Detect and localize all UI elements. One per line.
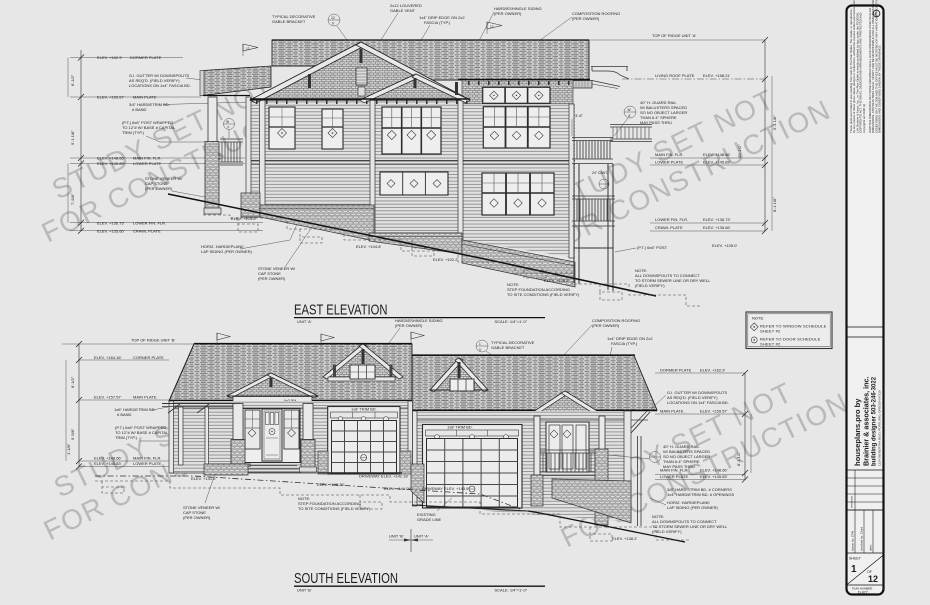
svg-text:drawn by: CPB: drawn by: CPB bbox=[851, 531, 855, 551]
svg-text:(PER OWNER): (PER OWNER) bbox=[258, 276, 286, 281]
svg-text:CRAWL PLATE: CRAWL PLATE bbox=[133, 228, 161, 233]
svg-text:W: W bbox=[226, 120, 229, 124]
svg-text:LOWER PLATE: LOWER PLATE bbox=[133, 461, 161, 466]
svg-text:GABLE BRACKET: GABLE BRACKET bbox=[491, 345, 525, 350]
svg-text:ELEV. +144.08': ELEV. +144.08' bbox=[384, 486, 412, 491]
svg-text:39'-1/2": 39'-1/2" bbox=[737, 144, 742, 158]
svg-text:ELEV. +164.18': ELEV. +164.18' bbox=[94, 355, 122, 360]
svg-text:SOUTH ELEVATION: SOUTH ELEVATION bbox=[294, 570, 398, 587]
svg-text:MAIN PLATE: MAIN PLATE bbox=[133, 395, 157, 400]
svg-text:9: 9 bbox=[479, 348, 481, 352]
svg-text:revisions: revisions bbox=[850, 496, 854, 508]
svg-text:9: 9 bbox=[332, 22, 334, 26]
svg-text:ELEV. +145.83': ELEV. +145.83' bbox=[700, 474, 728, 479]
svg-text:9'-1 1/8": 9'-1 1/8" bbox=[70, 130, 75, 145]
svg-text:12: 12 bbox=[246, 47, 250, 51]
svg-text:1x4" HARDIETRIM BD. # OPENINGS: 1x4" HARDIETRIM BD. # OPENINGS bbox=[667, 492, 735, 497]
svg-text:UNIT 'A': UNIT 'A' bbox=[297, 319, 312, 324]
svg-text:(PER OWNER): (PER OWNER) bbox=[183, 515, 211, 520]
svg-text:# BAND: # BAND bbox=[117, 412, 132, 417]
svg-text:ELEV. +136.73': ELEV. +136.73' bbox=[703, 217, 731, 222]
svg-text:ELEV. +148.66': ELEV. +148.66' bbox=[97, 156, 125, 161]
svg-text:ELEV. +162.9': ELEV. +162.9' bbox=[700, 368, 725, 373]
svg-text:(PER OWNER): (PER OWNER) bbox=[145, 186, 173, 191]
svg-text:9'-1 1/8": 9'-1 1/8" bbox=[772, 115, 777, 130]
svg-text:DIMENSIONS AND CONDITIONS SHOW: DIMENSIONS AND CONDITIONS SHOWN BY THESE… bbox=[878, 45, 882, 133]
svg-text:LAP SIDING (PER OWNER): LAP SIDING (PER OWNER) bbox=[201, 249, 252, 254]
svg-text:ELEV. +148.66': ELEV. +148.66' bbox=[700, 468, 728, 473]
svg-text:ELEV. +162.9': ELEV. +162.9' bbox=[97, 55, 122, 60]
svg-text:MAIN FIN. FLR.: MAIN FIN. FLR. bbox=[655, 152, 683, 157]
svg-text:(PER OWNER): (PER OWNER) bbox=[494, 11, 522, 16]
svg-text:W: W bbox=[628, 108, 631, 112]
svg-text:SCALE: 1/4"=1'-0": SCALE: 1/4"=1'-0" bbox=[495, 319, 528, 324]
svg-text:LOCATIONS ON 1x4" FASCIA BD.: LOCATIONS ON 1x4" FASCIA BD. bbox=[667, 400, 729, 405]
svg-text:12: 12 bbox=[331, 16, 335, 20]
svg-text:GABLE VENT: GABLE VENT bbox=[390, 8, 416, 13]
svg-text:9'-5/8": 9'-5/8" bbox=[70, 428, 75, 440]
svg-text:CORNER PLATE: CORNER PLATE bbox=[133, 355, 164, 360]
svg-text:TRIM (TYP.): TRIM (TYP.) bbox=[122, 130, 145, 135]
svg-text:F: F bbox=[228, 126, 230, 130]
svg-text:ELEV. +136.73': ELEV. +136.73' bbox=[97, 220, 125, 225]
svg-text:ELEV. +102.2': ELEV. +102.2' bbox=[433, 257, 458, 262]
svg-text:ELEV. +145.83': ELEV. +145.83' bbox=[94, 461, 122, 466]
svg-text:# BAND: # BAND bbox=[132, 107, 147, 112]
svg-text:ELEV. +138.2': ELEV. +138.2' bbox=[612, 536, 637, 541]
svg-text:1x8' TRIM BD.: 1x8' TRIM BD. bbox=[447, 425, 473, 430]
svg-text:ELEV. +158.21': ELEV. +158.21' bbox=[703, 73, 731, 78]
svg-text:FASCIA (TYP.): FASCIA (TYP.) bbox=[424, 20, 451, 25]
svg-text:UNIT 'B': UNIT 'B' bbox=[389, 534, 404, 539]
svg-text:FASCIA (TYP.): FASCIA (TYP.) bbox=[611, 341, 638, 346]
svg-text:TO SITE CONDITIONS (FIELD VERI: TO SITE CONDITIONS (FIELD VERIFY) bbox=[507, 292, 580, 297]
svg-text:DORMER PLATE: DORMER PLATE bbox=[130, 55, 162, 60]
svg-text:MAIN FIN. FLR.: MAIN FIN. FLR. bbox=[133, 156, 161, 161]
svg-text:ELEV. +157.57': ELEV. +157.57' bbox=[94, 395, 122, 400]
svg-text:TO SITE CONDITIONS (FIELD VERI: TO SITE CONDITIONS (FIELD VERIFY) bbox=[298, 506, 371, 511]
svg-text:7'-5/8": 7'-5/8" bbox=[70, 193, 75, 205]
svg-text:SHEET #2: SHEET #2 bbox=[760, 329, 781, 334]
svg-text:8'-1 1/8": 8'-1 1/8" bbox=[772, 197, 777, 212]
svg-text:1: 1 bbox=[851, 564, 857, 575]
svg-text:MAIN PLATE: MAIN PLATE bbox=[133, 95, 157, 100]
svg-text:LOWER PLATE: LOWER PLATE bbox=[133, 161, 161, 166]
svg-text:ELEV. +103.8': ELEV. +103.8' bbox=[231, 216, 256, 221]
svg-text:GABLE BRACKET: GABLE BRACKET bbox=[272, 19, 306, 24]
svg-text:UNIT 'B': UNIT 'B' bbox=[297, 588, 312, 593]
svg-text:ELEV. +148.66': ELEV. +148.66' bbox=[703, 152, 731, 157]
svg-text:copyrights act 1990 (c): copyrights act 1990 (c) bbox=[862, 104, 866, 133]
svg-text:(P.T.) 6x6" POST: (P.T.) 6x6" POST bbox=[637, 245, 668, 250]
svg-text:ELEV. +105.8': ELEV. +105.8' bbox=[544, 278, 569, 283]
svg-text:LAP SIDING (PER OWNER): LAP SIDING (PER OWNER) bbox=[667, 505, 718, 510]
svg-text:1: 1 bbox=[479, 342, 481, 346]
svg-text:(PER OWNER): (PER OWNER) bbox=[395, 323, 423, 328]
svg-text:LOWER FIN. FLR.: LOWER FIN. FLR. bbox=[655, 217, 688, 222]
svg-text:24" CANT.: 24" CANT. bbox=[592, 171, 608, 175]
svg-text:date:: date: bbox=[869, 544, 873, 551]
svg-text:c: c bbox=[875, 12, 878, 18]
svg-text:8: 8 bbox=[629, 114, 631, 118]
svg-text:LOCATIONS ON 1x4" FASCIA BD.: LOCATIONS ON 1x4" FASCIA BD. bbox=[129, 83, 191, 88]
svg-text:SHEET #2: SHEET #2 bbox=[760, 342, 781, 347]
svg-text:SCALE: 1/4"=1'-0": SCALE: 1/4"=1'-0" bbox=[495, 588, 528, 593]
svg-text:ELEV. +145.83': ELEV. +145.83' bbox=[97, 161, 125, 166]
svg-text:MAY PASS THRU: MAY PASS THRU bbox=[640, 120, 672, 125]
svg-text:1'-1/8": 1'-1/8" bbox=[66, 443, 71, 455]
svg-text:12: 12 bbox=[868, 574, 878, 584]
svg-text:ELEV. +135.66': ELEV. +135.66' bbox=[97, 228, 125, 233]
svg-text:12: 12 bbox=[490, 25, 494, 29]
svg-text:ELEV. +159.57': ELEV. +159.57' bbox=[700, 409, 728, 414]
svg-text:MAY PASS THRU: MAY PASS THRU bbox=[663, 464, 695, 469]
svg-text:1234 SW BERTHA BLVD, PORTLAND: 1234 SW BERTHA BLVD, PORTLAND, OREGON 97… bbox=[877, 390, 881, 466]
svg-text:(FIELD VERIFY): (FIELD VERIFY) bbox=[652, 529, 682, 534]
svg-text:CRAWL PLATE: CRAWL PLATE bbox=[655, 225, 683, 230]
svg-text:D-977: D-977 bbox=[858, 591, 868, 595]
svg-text:checked by: Chad: checked by: Chad bbox=[860, 527, 864, 551]
svg-text:TOP OF RIDGE UNIT 'A': TOP OF RIDGE UNIT 'A' bbox=[652, 33, 696, 38]
svg-text:MAIN PLATE: MAIN PLATE bbox=[660, 409, 684, 414]
svg-text:(FIELD VERIFY): (FIELD VERIFY) bbox=[635, 283, 665, 288]
svg-text:SHEET: SHEET bbox=[849, 557, 862, 561]
svg-text:LIVING ROOF PLATE: LIVING ROOF PLATE bbox=[655, 73, 695, 78]
svg-text:(PER OWNER): (PER OWNER) bbox=[572, 16, 600, 21]
svg-text:ELEV. +104.8': ELEV. +104.8' bbox=[356, 244, 381, 249]
svg-text:DRIVEWAY ELEV. +143.9': DRIVEWAY ELEV. +143.9' bbox=[422, 486, 469, 491]
svg-text:8'-1/2": 8'-1/2" bbox=[70, 74, 75, 86]
svg-text:LOWER FIN. FLR.: LOWER FIN. FLR. bbox=[133, 220, 166, 225]
svg-text:8'-1 1/2": 8'-1 1/2" bbox=[736, 451, 741, 466]
svg-text:ELEV. +145.25': ELEV. +145.25' bbox=[317, 482, 345, 487]
svg-text:MAIN FIN. FLR.: MAIN FIN. FLR. bbox=[133, 456, 161, 461]
svg-text:UNIT 'A': UNIT 'A' bbox=[414, 534, 429, 539]
svg-text:3'-6": 3'-6" bbox=[575, 113, 584, 118]
svg-text:1x8' TRIM BD.: 1x8' TRIM BD. bbox=[351, 407, 377, 412]
svg-text:Brainier & associates, inc.: Brainier & associates, inc. bbox=[862, 377, 871, 467]
svg-text:TOP OF RIDGE UNIT 'B': TOP OF RIDGE UNIT 'B' bbox=[131, 338, 175, 343]
svg-text:8'-1/2": 8'-1/2" bbox=[70, 376, 75, 388]
svg-text:ELEV. +145.83': ELEV. +145.83' bbox=[703, 160, 731, 165]
svg-text:(PER OWNER): (PER OWNER) bbox=[592, 323, 620, 328]
svg-text:ELEV. +105.0': ELEV. +105.0' bbox=[712, 243, 737, 248]
svg-text:EAST ELEVATION: EAST ELEVATION bbox=[294, 302, 388, 319]
svg-text:ELEV. +148.66': ELEV. +148.66' bbox=[94, 456, 122, 461]
svg-text:3'-6": 3'-6" bbox=[217, 151, 222, 160]
svg-text:LOWER PLATE: LOWER PLATE bbox=[655, 160, 683, 165]
svg-text:NOTE:: NOTE: bbox=[752, 316, 764, 321]
svg-text:ELEV. +135.66': ELEV. +135.66' bbox=[703, 225, 731, 230]
svg-text:ELEV. +159.57': ELEV. +159.57' bbox=[97, 95, 125, 100]
svg-text:DRIVEWAY ELEV. +142.18': DRIVEWAY ELEV. +142.18' bbox=[359, 474, 409, 479]
svg-text:TRIM (TYP.): TRIM (TYP.) bbox=[115, 435, 138, 440]
svg-text:LOWER PLATE: LOWER PLATE bbox=[660, 474, 688, 479]
svg-text:GRADE LINE: GRADE LINE bbox=[417, 517, 442, 522]
svg-text:DORMER PLATE: DORMER PLATE bbox=[660, 368, 692, 373]
